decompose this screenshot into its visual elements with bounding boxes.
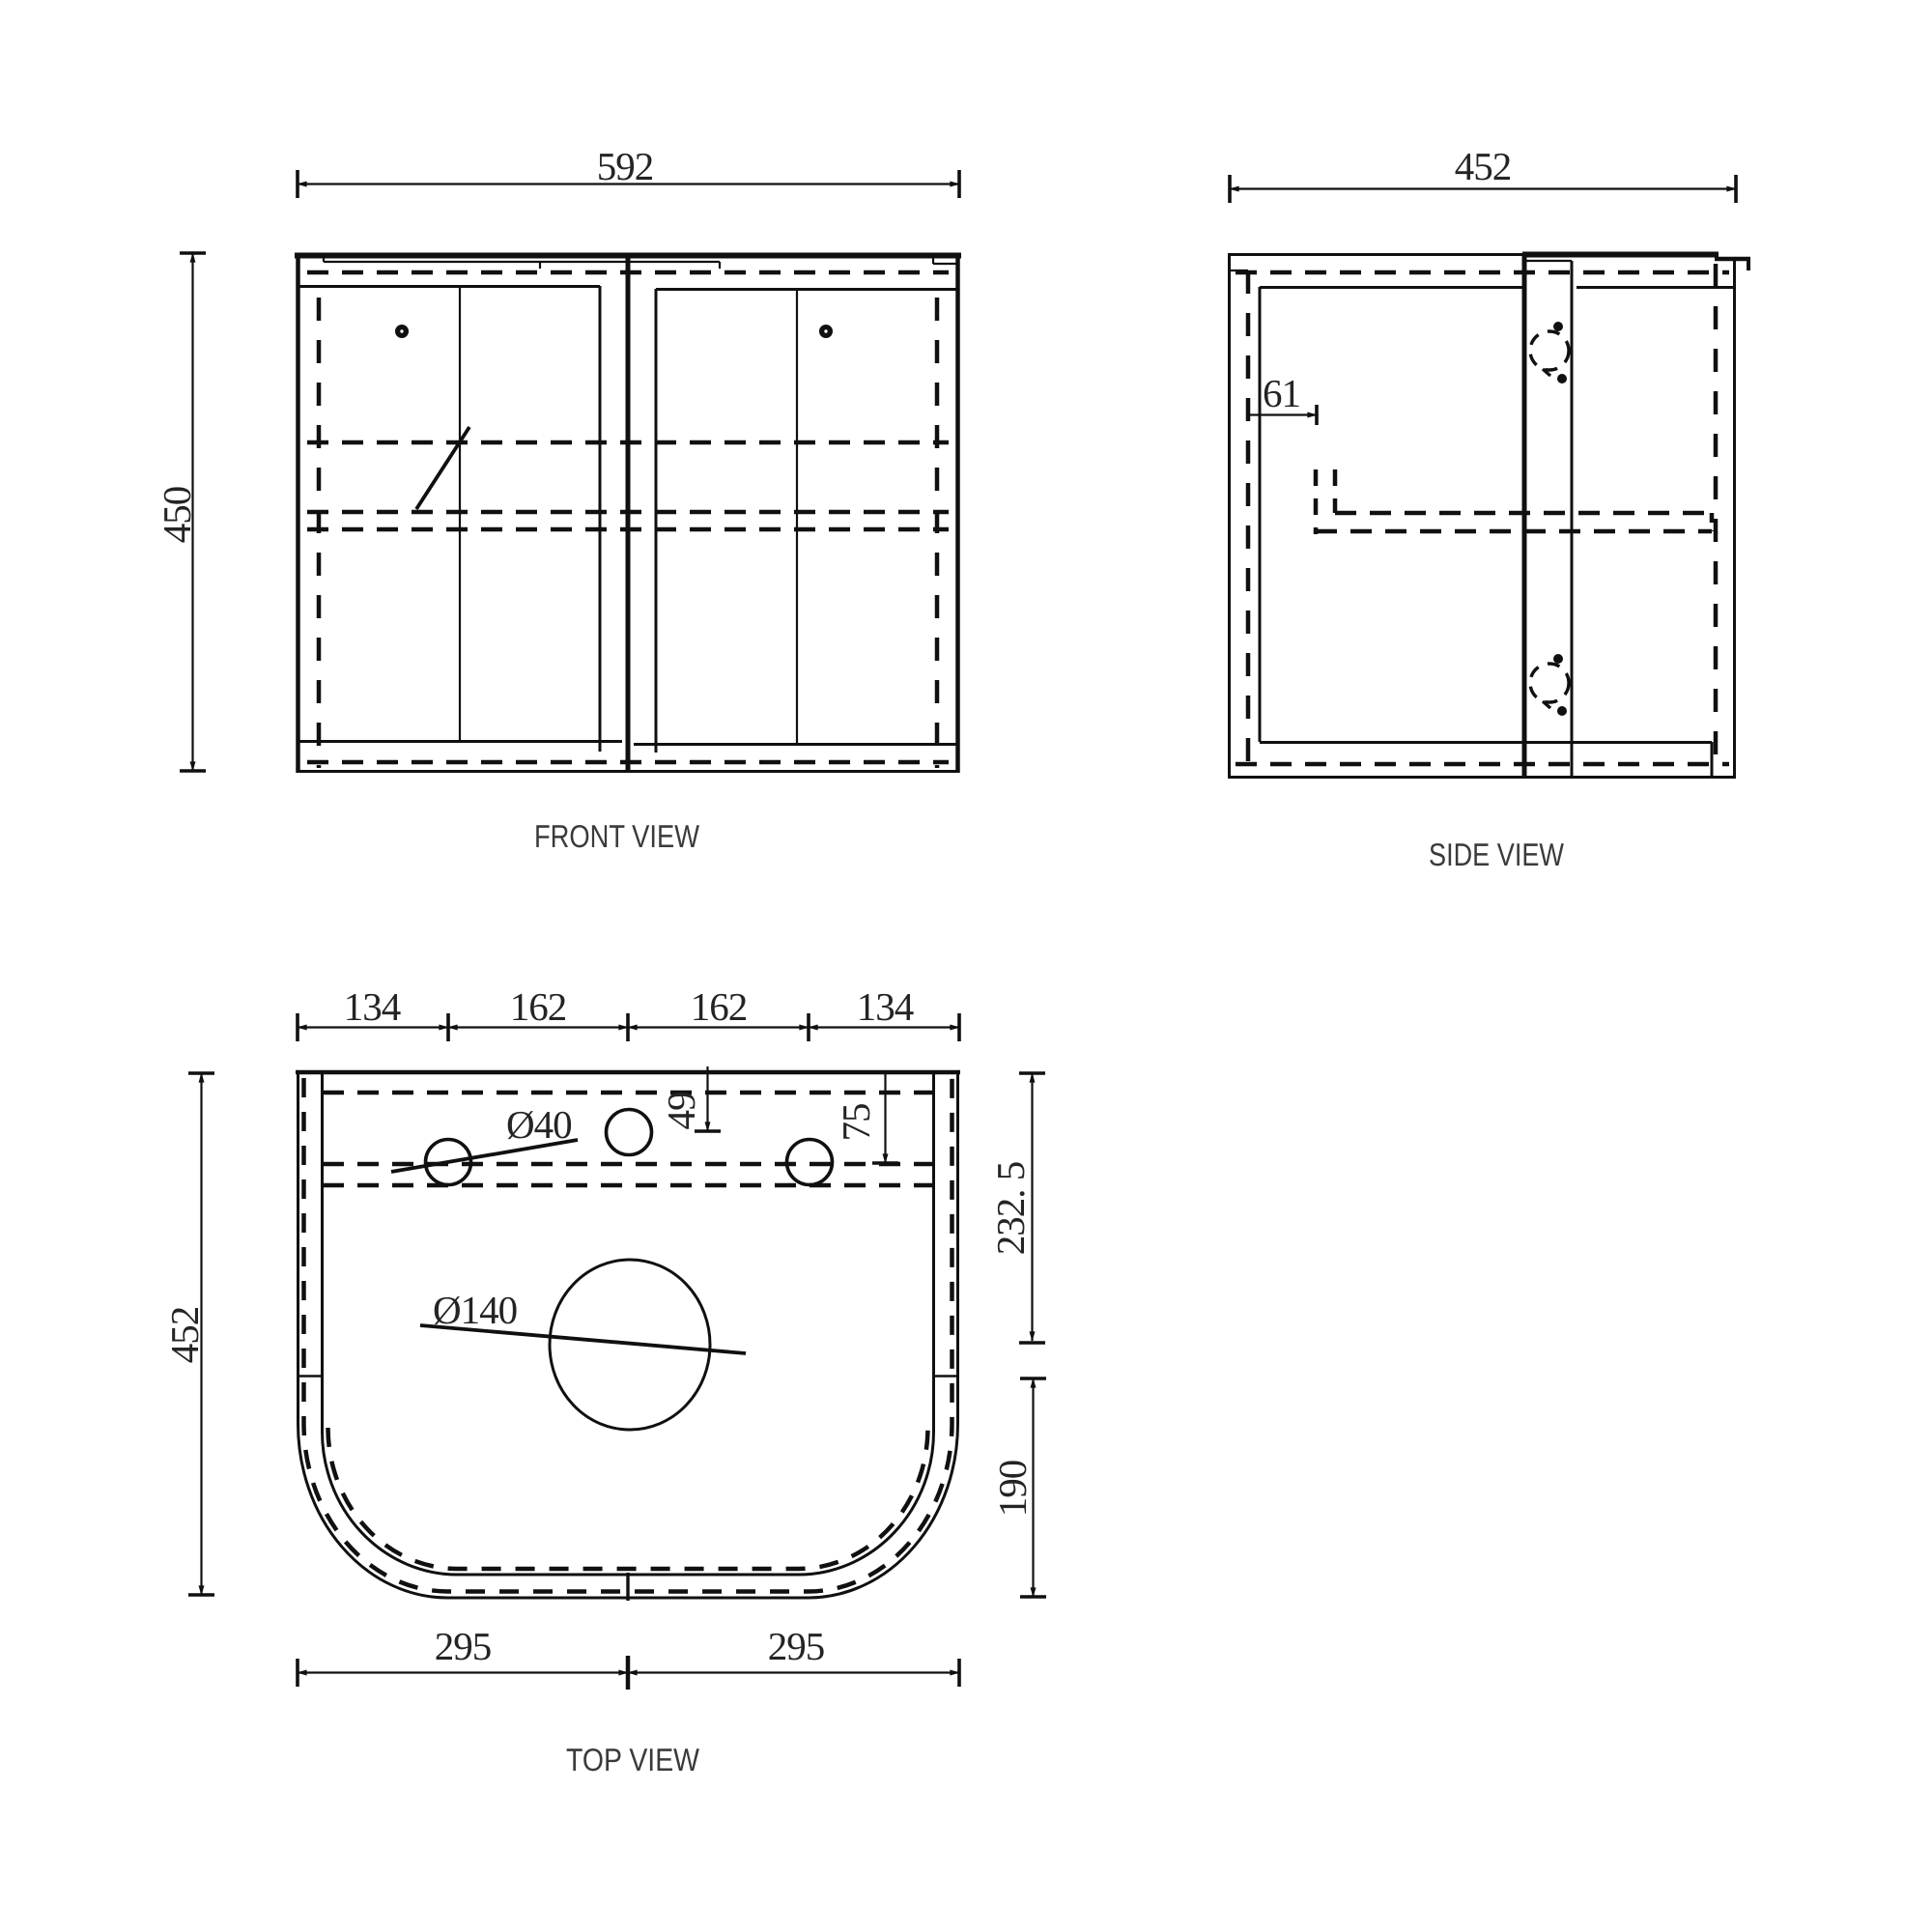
svg-text:49: 49 bbox=[659, 1093, 703, 1130]
svg-text:592: 592 bbox=[597, 144, 654, 188]
svg-text:Ø140: Ø140 bbox=[433, 1288, 517, 1332]
svg-text:450: 450 bbox=[155, 487, 199, 544]
svg-text:FRONT VIEW: FRONT VIEW bbox=[534, 818, 700, 854]
svg-text:Ø40: Ø40 bbox=[506, 1102, 572, 1147]
svg-text:295: 295 bbox=[435, 1624, 492, 1668]
svg-text:SIDE VIEW: SIDE VIEW bbox=[1429, 837, 1565, 872]
svg-text:232. 5: 232. 5 bbox=[988, 1162, 1033, 1256]
svg-text:452: 452 bbox=[162, 1307, 207, 1364]
svg-text:134: 134 bbox=[857, 984, 914, 1029]
svg-text:TOP VIEW: TOP VIEW bbox=[566, 1742, 700, 1777]
svg-text:452: 452 bbox=[1455, 144, 1512, 188]
svg-text:134: 134 bbox=[344, 984, 401, 1029]
svg-text:295: 295 bbox=[768, 1624, 825, 1668]
svg-text:61: 61 bbox=[1263, 371, 1300, 415]
svg-text:75: 75 bbox=[834, 1104, 878, 1142]
svg-text:162: 162 bbox=[691, 984, 748, 1029]
svg-text:162: 162 bbox=[510, 984, 567, 1029]
svg-text:190: 190 bbox=[990, 1461, 1035, 1518]
